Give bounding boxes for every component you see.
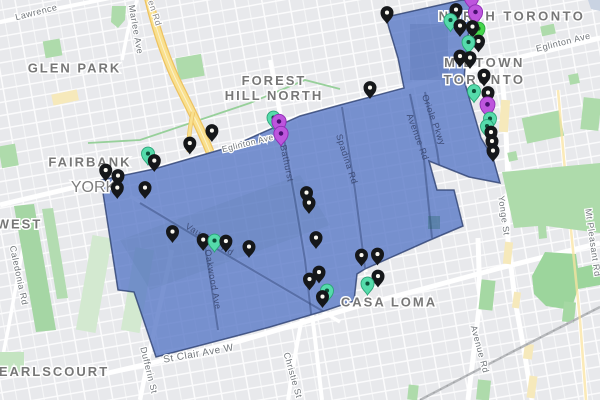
svg-text:FOREST: FOREST (242, 73, 307, 88)
svg-text:EARLSCOURT: EARLSCOURT (0, 364, 109, 379)
svg-text:WEST: WEST (0, 217, 42, 232)
svg-text:FAIRBANK: FAIRBANK (48, 155, 131, 170)
svg-text:HILL NORTH: HILL NORTH (225, 88, 323, 103)
svg-text:YORK: YORK (71, 179, 117, 196)
svg-text:CASA LOMA: CASA LOMA (341, 295, 437, 310)
svg-text:GLEN PARK: GLEN PARK (28, 61, 122, 76)
